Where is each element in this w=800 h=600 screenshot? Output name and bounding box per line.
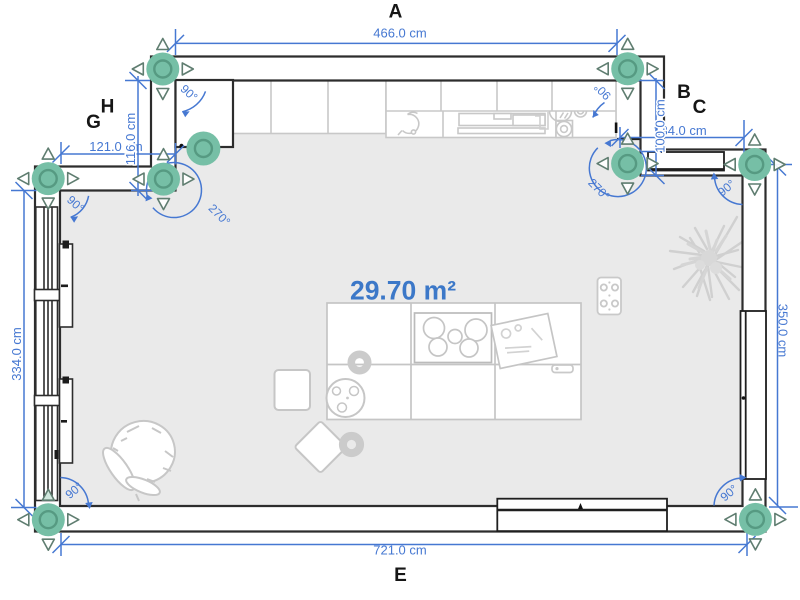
svg-text:721.0 cm: 721.0 cm xyxy=(373,543,426,558)
svg-text:B: B xyxy=(677,82,691,103)
svg-text:G: G xyxy=(86,112,101,133)
svg-text:H: H xyxy=(101,97,115,118)
svg-text:116.0 cm: 116.0 cm xyxy=(123,113,138,166)
svg-text:350.0 cm: 350.0 cm xyxy=(776,304,791,357)
svg-text:466.0 cm: 466.0 cm xyxy=(373,26,426,41)
svg-text:E: E xyxy=(394,565,407,586)
svg-text:100.0 cm: 100.0 cm xyxy=(653,99,668,152)
svg-text:C: C xyxy=(693,97,707,118)
svg-text:29.70 m²: 29.70 m² xyxy=(350,276,456,306)
svg-text:A: A xyxy=(389,2,403,23)
svg-text:334.0 cm: 334.0 cm xyxy=(9,327,24,380)
